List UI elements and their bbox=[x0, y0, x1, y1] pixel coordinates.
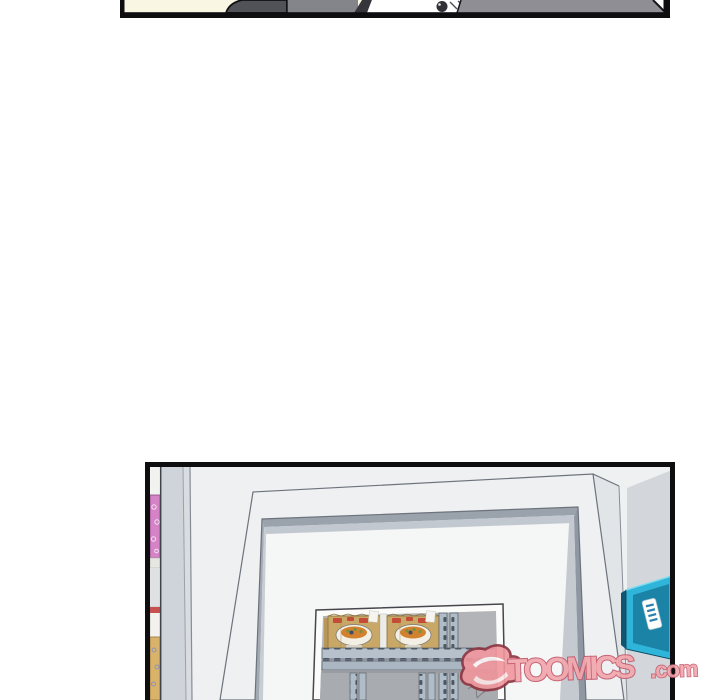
wall-gray-region bbox=[457, 0, 664, 13]
suit-torso-mid bbox=[287, 0, 358, 13]
watermark-suffix-text: .com bbox=[650, 656, 699, 683]
shirt-button bbox=[437, 1, 448, 12]
red-box-trim bbox=[150, 607, 160, 613]
comic-panel-top bbox=[120, 0, 670, 18]
noodle-packages bbox=[324, 611, 439, 652]
comic-panel-top-art bbox=[120, 0, 670, 18]
toomics-watermark: TOOMICS .com bbox=[450, 636, 720, 698]
pink-snack-package bbox=[150, 495, 160, 558]
shelf-edge bbox=[150, 558, 160, 568]
suit-shoulder-dark bbox=[226, 0, 287, 13]
left-shelf-strip bbox=[150, 466, 160, 700]
character-artwork bbox=[226, 0, 664, 13]
shelf-divider bbox=[380, 614, 387, 652]
wall-pillar bbox=[160, 466, 192, 700]
webtoon-page: TOOMICS .com bbox=[0, 0, 720, 700]
watermark-brand-text: TOOMICS bbox=[507, 648, 636, 688]
